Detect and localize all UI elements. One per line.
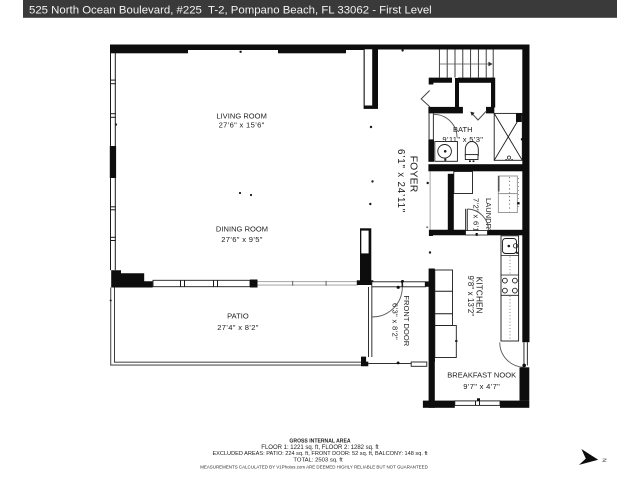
svg-text:DINING ROOM: DINING ROOM bbox=[216, 225, 268, 234]
svg-text:7’2" x 6’1": 7’2" x 6’1" bbox=[472, 198, 481, 235]
svg-text:27’6" x 15’6": 27’6" x 15’6" bbox=[219, 121, 265, 130]
svg-text:9’8" x 13’2": 9’8" x 13’2" bbox=[466, 276, 475, 317]
svg-text:GROSS INTERNAL AREA: GROSS INTERNAL AREA bbox=[289, 439, 350, 445]
svg-text:BATH: BATH bbox=[453, 125, 473, 134]
svg-text:27’4" x 8’2": 27’4" x 8’2" bbox=[217, 323, 259, 332]
svg-text:PATIO: PATIO bbox=[227, 312, 249, 321]
svg-text:9’7" x 4’7": 9’7" x 4’7" bbox=[463, 382, 500, 391]
svg-text:N: N bbox=[601, 458, 607, 462]
svg-text:27’6" x 9’5": 27’6" x 9’5" bbox=[221, 235, 263, 244]
svg-text:525 North Ocean Boulevard, #22: 525 North Ocean Boulevard, #225 T-2, Pom… bbox=[29, 4, 432, 16]
svg-text:6’3" x 8’2": 6’3" x 8’2" bbox=[390, 303, 399, 340]
svg-text:MEASUREMENTS CALCULATED BY V1P: MEASUREMENTS CALCULATED BY V1Photos.com … bbox=[200, 464, 428, 469]
svg-text:LIVING ROOM: LIVING ROOM bbox=[216, 112, 267, 121]
svg-text:6’1" x 24’11": 6’1" x 24’11" bbox=[395, 149, 406, 213]
svg-text:FRONT DOOR: FRONT DOOR bbox=[402, 295, 411, 346]
svg-text:EXCLUDED AREAS: PATIO: 224 sq.: EXCLUDED AREAS: PATIO: 224 sq. ft, FRONT… bbox=[212, 451, 428, 457]
svg-text:BREAKFAST NOOK: BREAKFAST NOOK bbox=[447, 371, 516, 380]
svg-text:FOYER: FOYER bbox=[407, 156, 418, 193]
svg-text:TOTAL: 2503 sq. ft: TOTAL: 2503 sq. ft bbox=[293, 458, 343, 464]
